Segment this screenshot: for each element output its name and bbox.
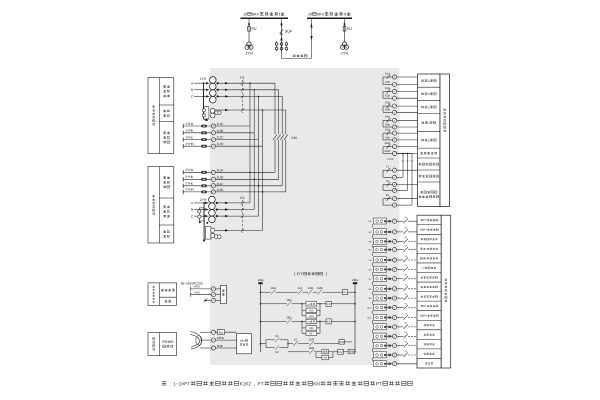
svg-text:FU: FU	[251, 27, 256, 31]
svg-text:K1a: K1a	[385, 71, 390, 75]
svg-text:KM: KM	[323, 357, 327, 360]
svg-text:K1B: K1B	[308, 286, 313, 290]
svg-text:1UC': 1UC'	[217, 136, 224, 140]
svg-text:QK: QK	[404, 274, 408, 277]
svg-text:2YHa: 2YHa	[185, 168, 193, 172]
svg-text:QK: QK	[404, 312, 408, 315]
svg-text:K2B: K2B	[317, 286, 322, 290]
svg-text:485: 485	[240, 340, 246, 343]
svg-text:QK: QK	[404, 350, 408, 353]
svg-text:KM: KM	[313, 382, 319, 388]
svg-text:1~2#PT: 1~2#PT	[173, 382, 190, 388]
svg-text:1Ma: 1Ma	[258, 278, 264, 282]
svg-text:1M3: 1M3	[309, 338, 315, 342]
svg-text:2M1: 2M1	[286, 315, 292, 319]
svg-text:K1: K1	[275, 334, 279, 338]
svg-text:K1B: K1B	[339, 340, 344, 344]
svg-text:B: B	[191, 88, 193, 92]
svg-text:QK: QK	[404, 322, 408, 325]
svg-text:1M1: 1M1	[286, 298, 292, 302]
svg-text:KM: KM	[338, 350, 343, 354]
svg-text:1YHN: 1YHN	[185, 142, 194, 146]
svg-text:K2: K2	[240, 196, 244, 200]
svg-text:PT: PT	[297, 272, 303, 276]
svg-text:2UN': 2UN'	[217, 188, 224, 192]
svg-text:K4b: K4b	[385, 122, 390, 126]
svg-text:2M3: 2M3	[309, 346, 315, 350]
svg-text:10: 10	[243, 13, 247, 17]
svg-text:KMb: KMb	[385, 149, 391, 153]
svg-text:2YHb: 2YHb	[185, 175, 193, 179]
svg-text:PT: PT	[376, 382, 382, 388]
svg-text:2UA': 2UA'	[217, 168, 224, 172]
svg-text:YH: YH	[307, 320, 310, 323]
svg-text:1M4: 1M4	[270, 286, 276, 290]
svg-text:6KV: 6KV	[317, 13, 325, 17]
svg-text:QK: QK	[404, 245, 408, 248]
svg-text:1YHa: 1YHa	[185, 122, 193, 126]
svg-text:]: ]	[326, 272, 327, 276]
svg-text:+KM: +KM	[193, 285, 200, 289]
svg-text:2Ma: 2Ma	[352, 278, 358, 282]
svg-text:QK: QK	[404, 227, 408, 230]
svg-text:FU: FU	[347, 27, 352, 31]
svg-text:2YHN: 2YHN	[185, 188, 194, 192]
svg-text:1YHb: 1YHb	[185, 129, 193, 133]
svg-text:K4a: K4a	[385, 115, 390, 119]
svg-text:1UN': 1UN'	[217, 142, 224, 146]
svg-text:PT: PT	[257, 382, 263, 388]
svg-text:KM: KM	[292, 136, 297, 140]
svg-text:KMa: KMa	[385, 141, 391, 145]
svg-text:K1b: K1b	[385, 80, 390, 84]
svg-text:YH: YH	[307, 303, 310, 306]
svg-text:K2: K2	[275, 350, 279, 354]
svg-text:1YHc: 1YHc	[185, 135, 193, 139]
svg-text:K1: K1	[343, 290, 347, 294]
svg-text:2YH: 2YH	[341, 52, 349, 56]
svg-text:B: B	[191, 208, 193, 212]
svg-text:[: [	[294, 272, 295, 276]
svg-text:2UC': 2UC'	[217, 182, 224, 186]
svg-text:K2b: K2b	[385, 94, 390, 98]
svg-text:K5b: K5b	[385, 135, 390, 139]
svg-text:3QF: 3QF	[285, 30, 293, 34]
svg-text:QK: QK	[404, 340, 408, 343]
svg-text:R47: R47	[309, 332, 314, 335]
svg-text:10: 10	[308, 13, 312, 17]
svg-text:485B: 485B	[217, 336, 224, 340]
svg-text:6KV: 6KV	[252, 13, 260, 17]
svg-text:QK: QK	[404, 216, 408, 219]
svg-text:K1K2: K1K2	[240, 382, 252, 388]
svg-text:RS485: RS485	[162, 340, 173, 344]
svg-text:R08: R08	[309, 309, 314, 312]
svg-text:K1: K1	[240, 76, 244, 80]
svg-text:QK: QK	[404, 293, 408, 296]
svg-text:2YH: 2YH	[200, 198, 207, 202]
svg-text:-KM: -KM	[194, 290, 200, 294]
svg-text:1YH: 1YH	[200, 77, 207, 81]
svg-text:1YH: 1YH	[245, 52, 253, 56]
svg-text:K3b: K3b	[385, 108, 390, 112]
svg-text:1UB': 1UB'	[217, 129, 224, 133]
svg-text:QK: QK	[404, 302, 408, 305]
svg-text:K3a: K3a	[385, 101, 390, 105]
svg-text:2UB': 2UB'	[217, 175, 224, 179]
svg-text:R46: R46	[309, 327, 314, 330]
svg-text:2YHc: 2YHc	[185, 182, 193, 186]
svg-text:I: I	[279, 13, 280, 17]
svg-text:QK: QK	[404, 284, 408, 287]
svg-text:QK: QK	[404, 264, 408, 267]
svg-text:K1S8: K1S8	[387, 158, 394, 161]
svg-text:K4: K4	[327, 319, 331, 323]
svg-text:QK: QK	[404, 236, 408, 239]
svg-text:K5a: K5a	[385, 128, 390, 132]
svg-text:K3: K3	[327, 302, 331, 306]
svg-text:QK: QK	[404, 331, 408, 334]
svg-text:1UA': 1UA'	[217, 122, 224, 126]
svg-text:K2a: K2a	[385, 86, 390, 90]
svg-text:R09: R09	[309, 315, 314, 318]
svg-text:II: II	[343, 13, 346, 17]
svg-text:QK: QK	[404, 255, 408, 258]
svg-text:K1T: K1T	[298, 286, 303, 290]
